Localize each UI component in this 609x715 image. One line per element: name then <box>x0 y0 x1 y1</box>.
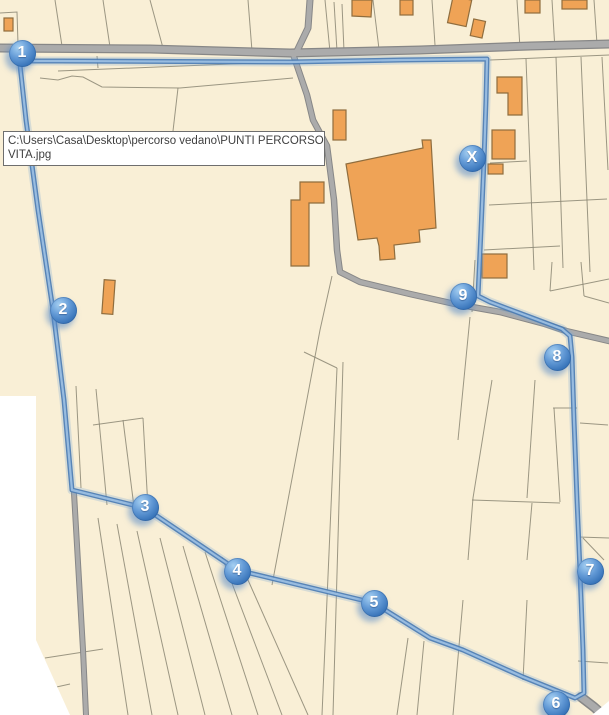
waypoint-marker-label: 3 <box>141 499 150 515</box>
waypoint-marker-label: X <box>467 150 478 166</box>
nodata-regions <box>0 396 609 715</box>
waypoint-marker-label: 1 <box>18 45 27 61</box>
waypoint-marker-label: 2 <box>59 302 68 318</box>
waypoint-marker-4[interactable]: 4 <box>224 558 251 585</box>
map-canvas[interactable] <box>0 0 609 715</box>
waypoint-marker-label: 5 <box>370 595 379 611</box>
waypoint-marker-X[interactable]: X <box>459 145 486 172</box>
waypoint-marker-9[interactable]: 9 <box>450 283 477 310</box>
waypoint-marker-5[interactable]: 5 <box>361 590 388 617</box>
waypoint-marker-label: 7 <box>586 563 595 579</box>
waypoint-marker-3[interactable]: 3 <box>132 494 159 521</box>
waypoint-marker-7[interactable]: 7 <box>577 558 604 585</box>
tooltip-path-line2: VITA.jpg <box>8 148 320 162</box>
file-path-tooltip: C:\Users\Casa\Desktop\percorso vedano\PU… <box>3 131 325 166</box>
waypoint-marker-label: 4 <box>233 563 242 579</box>
waypoint-marker-2[interactable]: 2 <box>50 297 77 324</box>
waypoint-marker-label: 9 <box>459 288 468 304</box>
waypoint-marker-1[interactable]: 1 <box>9 40 36 67</box>
waypoint-marker-label: 6 <box>552 696 561 712</box>
tooltip-path-line1: C:\Users\Casa\Desktop\percorso vedano\PU… <box>8 134 320 148</box>
waypoint-marker-label: 8 <box>553 349 562 365</box>
waypoint-marker-6[interactable]: 6 <box>543 691 570 715</box>
map-viewer-window: 123456789X C:\Users\Casa\Desktop\percors… <box>0 0 609 715</box>
waypoint-marker-8[interactable]: 8 <box>544 344 571 371</box>
